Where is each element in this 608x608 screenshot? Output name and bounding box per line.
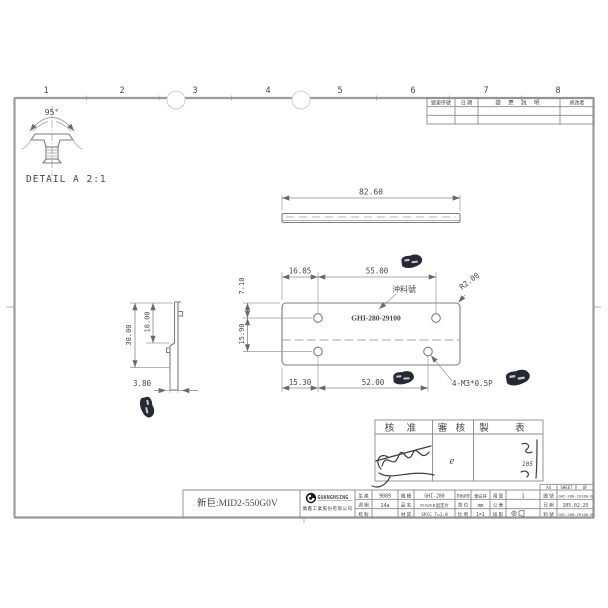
field-drawing-no-value: GHI-280-29100-B [558, 493, 593, 498]
column-number: 6 [410, 86, 415, 96]
approval-table: 核 准 審 核 製 表 e 105 [372, 420, 543, 487]
detail-a-view: 95° DETAIL A 2:1 [22, 106, 107, 185]
field-tolerance-label: 公 差 [493, 502, 504, 508]
mounting-hole [314, 347, 323, 356]
field-date-value: 105.02.25 [563, 503, 589, 509]
dim-7-10: 7.10 [238, 278, 246, 295]
reviewed-signature: e [450, 455, 455, 467]
ink-stamp [393, 371, 415, 385]
title-block: A4 SHEET OF GUANGHSING 廣鑫工業股份有限公司 生 產 90… [300, 484, 594, 518]
field-check-label: 校 對 [358, 511, 369, 518]
dim-30-00: 30.00 [125, 324, 133, 345]
field-projection-label: 投 影 [493, 511, 504, 518]
field-production-label: 生 產 [358, 492, 369, 499]
column-number: 8 [555, 86, 560, 96]
mounting-hole [424, 347, 433, 356]
column-number: 4 [265, 86, 270, 96]
ink-stamp [401, 254, 423, 269]
approval-col-reviewed: 審 核 [438, 422, 468, 434]
top-view-length-dim: 82.60 [359, 188, 383, 197]
field-cycle-value: 14a [380, 503, 389, 509]
third-angle-projection-icon [512, 510, 524, 516]
revision-col-change-no: 變更序號 [431, 99, 451, 106]
column-number: 2 [119, 86, 124, 96]
field-date-label: 日 期 [543, 503, 554, 509]
paper-size: A4 [546, 485, 551, 490]
side-view: 30.00 18.00 3.80 [125, 302, 198, 393]
dim-18-00: 18.00 [144, 311, 152, 332]
punch-hole [167, 91, 185, 109]
dim-16-05: 16.05 [289, 267, 312, 276]
ink-stamp [139, 396, 156, 419]
stamp-number-label: 沖料號 [392, 284, 416, 294]
field-model-label: 機 種 [401, 492, 412, 499]
field-production-value: 9089 [379, 494, 391, 500]
field-finish-label: 表面處理 [456, 493, 470, 498]
revision-col-description: 變 更 說 明 [495, 99, 542, 107]
logo-g-icon-dot [309, 497, 312, 500]
column-number: 5 [337, 86, 342, 96]
front-view: GHI-280-29100 16.05 55.00 7.10 15.90 15.… [238, 267, 493, 393]
part-marking: GHI-280-29100 [351, 314, 401, 323]
customer-note: 新巨:MID2-550G0V [197, 497, 278, 509]
revision-col-date: 日 期 [461, 100, 472, 106]
top-view: 82.60 [282, 188, 460, 223]
plate-outline [282, 303, 460, 365]
dim-3-80: 3.80 [133, 379, 152, 388]
field-scale-label: 比 例 [458, 511, 469, 518]
footer-note: 新巨:MID2-550G0V [183, 490, 300, 518]
field-product-label: 品 名 [401, 502, 411, 509]
revision-col-modifier: 修改者 [569, 99, 584, 106]
field-drawing-no-label: 圖 號 [543, 492, 554, 499]
field-cycle-label: 週 期 [358, 502, 369, 509]
dim-15-30: 15.30 [289, 378, 312, 387]
dim-r2-00: R2.00 [458, 270, 482, 291]
revision-table: 變更序號 日 期 變 更 說 明 修改者 [427, 98, 594, 124]
drawing-canvas: 1 2 3 4 5 6 7 8 變更序號 日 期 變 更 說 明 修改者 95°… [0, 0, 608, 608]
mounting-hole [432, 314, 441, 323]
dim-15-90: 15.90 [238, 323, 246, 344]
field-part-no-value: GHI-280-29100-B [558, 512, 593, 517]
prepared-signature [521, 440, 537, 478]
company-name-zh: 廣鑫工業股份有限公司 [303, 505, 353, 512]
field-material-label: 材 質 [401, 511, 412, 518]
dim-55-00: 55.00 [366, 267, 389, 276]
detail-angle-dim: 95° [45, 108, 59, 117]
of-label: OF [583, 485, 588, 490]
field-product-value: POWER固定片 [420, 502, 449, 509]
column-number: 1 [43, 86, 48, 96]
column-number: 3 [192, 86, 197, 96]
sheet-frame: 1 2 3 4 5 6 7 8 [6, 86, 601, 523]
prepared-signature-note: 105 [522, 461, 533, 468]
field-part-no-label: 料 號 [543, 511, 554, 518]
field-model-value: GHI-280 [424, 494, 444, 500]
drawing-sheet: 1 2 3 4 5 6 7 8 變更序號 日 期 變 更 說 明 修改者 95°… [0, 0, 608, 608]
field-qty-value: 1 [521, 494, 524, 500]
field-unit-value: mm [478, 504, 484, 509]
field-material-value: SPCC T=1.0 [421, 512, 448, 518]
field-finish-value: 鍍白鋅 [474, 492, 487, 499]
approval-col-approved: 核 准 [385, 422, 421, 434]
company-logo: GUANGHSING 廣鑫工業股份有限公司 [303, 493, 353, 512]
column-number: 7 [483, 86, 488, 96]
ink-stamp [505, 369, 531, 387]
hole-callout: 4-M3*0.5P [452, 379, 493, 388]
approval-col-prepared: 製 表 [479, 422, 536, 434]
sheet-label: SHEET [560, 485, 573, 490]
field-qty-label: 用 量 [493, 492, 504, 499]
dim-52-00: 52.00 [362, 378, 385, 387]
field-unit-label: 單 位 [458, 502, 469, 508]
detail-view-label: DETAIL A 2:1 [26, 174, 107, 185]
punch-hole [292, 91, 310, 109]
field-scale-value: 1=1 [476, 512, 485, 518]
mounting-hole [314, 314, 323, 323]
